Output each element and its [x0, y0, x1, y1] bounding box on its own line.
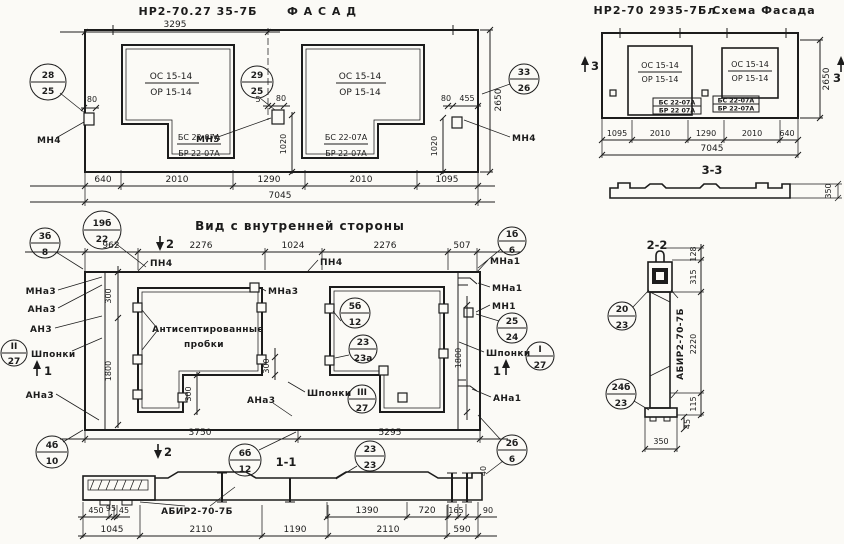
balloon-5b-12: 5б 12 [340, 298, 370, 328]
s11-dim-2110a: 2110 [190, 525, 213, 535]
s11-hatch [90, 480, 142, 490]
schema-dim-1095: 1095 [607, 129, 627, 138]
schema-title-code: НР2-70 2935-7Бл [594, 4, 717, 17]
balloon-1b-6: 1б 6 [498, 227, 526, 256]
view-top-dim-line [25, 249, 520, 255]
balloon-top: 33 [518, 68, 531, 78]
view-bottom-extensions [85, 430, 480, 443]
s22-part-label: АБИР2-70-7Б [676, 308, 686, 380]
balloon-III-27: III 27 [348, 385, 376, 414]
view-window-left-inner [142, 292, 258, 408]
s22-leader-lines [633, 290, 678, 410]
view-notch-dim-line [194, 372, 200, 415]
facade-dim-2010b: 2010 [350, 175, 373, 185]
balloon-bottom: 27 [534, 361, 547, 371]
section-mark-3-left: 3 [581, 56, 599, 73]
balloon-4b-10: 4б 10 [36, 436, 68, 468]
view-label-mna3-left1: МНа3 [26, 287, 56, 297]
balloon-top: 23 [364, 445, 377, 455]
section-mark-2-bottom: 2 [154, 444, 172, 459]
s11-dim-1045: 1045 [101, 525, 124, 535]
balloon-bottom: 23 [616, 321, 629, 331]
facade-dim-1020m: 1020 [279, 134, 288, 154]
s22-dim-350-line [642, 446, 680, 452]
balloon-3b-8: 3б 8 [30, 228, 60, 258]
balloon-top: 20 [616, 305, 629, 315]
schema-win2-mark-top: ОС 15-14 [731, 60, 769, 69]
balloon-top: 4б [46, 440, 59, 451]
facade-dim-1020r-line [440, 115, 446, 175]
view-note-line1: Антисептированные [152, 325, 264, 335]
view-label-shponki-mid: Шпонки [307, 389, 352, 399]
balloon-top: 1б [506, 229, 519, 240]
facade-anchor-label-mn4-right: МН4 [512, 134, 536, 144]
balloon-bottom: 12 [349, 318, 362, 328]
inner-view-title: Вид с внутренней стороны [195, 219, 405, 233]
balloon-top: 24б [612, 382, 631, 393]
s22-dim-45: 45 [683, 419, 692, 429]
anchor-plate-icon [272, 110, 284, 124]
balloon-bottom: 23 [615, 399, 628, 409]
view-dim-300-mid: 300 [262, 358, 271, 373]
balloon-top: I [538, 345, 541, 355]
facade-dim-1020m-line [289, 112, 295, 175]
section-2-2: 2-2 20 23 24б 23 АБИР2-70-7Б 128 315 222… [606, 238, 704, 452]
schema-drawing: НР2-70 2935-7Бл Схема Фасада ОС 15-14 ОР… [581, 4, 844, 201]
section-1-1: 1-1 23 23 40 АБИР2-70-7Б 450 95 45 1390 … [78, 441, 497, 539]
view-dim-1024: 1024 [282, 241, 305, 251]
balloon-28-25: 28 25 [30, 64, 66, 100]
view-note-line2: пробки [184, 339, 224, 350]
view-dim-1800-right: 1800 [454, 348, 463, 368]
schema-win1-mark-bot: ОР 15-14 [642, 75, 679, 84]
schema-title-word: Схема Фасада [712, 4, 815, 17]
section-mark-label: 2 [166, 237, 174, 251]
balloon-top: 6б [239, 448, 252, 459]
schema-sill1-top: БС 22-07А [659, 100, 696, 107]
balloon-bottom: 10 [46, 457, 59, 467]
s22-bottom-plate [645, 408, 677, 417]
facade-title-word: Ф А С А Д [287, 5, 357, 18]
view-dim-5295: 5295 [379, 428, 402, 438]
s11-dim-165: 165 [448, 506, 463, 515]
facade-win1-mark-bot: ОР 15-14 [150, 88, 192, 98]
s11-dim-1390: 1390 [356, 506, 379, 516]
facade-dim-1020r: 1020 [430, 136, 439, 156]
view-dim-507: 507 [453, 241, 470, 251]
balloon-top: II [11, 342, 18, 352]
s11-dim-1190: 1190 [284, 525, 307, 535]
balloon-bottom: 26 [518, 84, 531, 94]
drawing-canvas: НР2-70.27 35-7Б Ф А С А Д 3295 ОС 15-14 … [0, 0, 844, 544]
facade-dim-80r: 80 [441, 94, 451, 103]
balloon-20-23: 20 23 [608, 302, 636, 331]
view-label-ana3-left1: АНа3 [28, 305, 56, 315]
section-mark-label: 3 [833, 71, 841, 85]
s22-body [650, 292, 670, 408]
schema-dim-640: 640 [779, 129, 794, 138]
balloon-bottom: 8 [42, 248, 48, 258]
s22-lifting-loop [656, 251, 664, 262]
section-1-1-title: 1-1 [276, 455, 297, 469]
view-label-mna3-mid: МНа3 [268, 287, 298, 297]
schema-dim-2010a: 2010 [650, 129, 670, 138]
balloon-19b-22: 19б 22 [83, 211, 121, 249]
view-dim-2276b: 2276 [374, 241, 397, 251]
facade-dim-2650-line [480, 27, 493, 175]
facade-dim-80l: 80 [87, 95, 97, 104]
section-mark-1-left: 1 [33, 360, 52, 378]
schema-dim-2650-line [800, 37, 823, 121]
view-label-shponki-right: Шпонки [486, 349, 531, 359]
view-label-ana3-left2: АНа3 [26, 391, 54, 401]
balloon-bottom: 24 [506, 333, 519, 343]
schema-sill2-top: БС 22-07А [718, 98, 755, 105]
view-dim-300-notch: 300 [184, 386, 193, 401]
facade-win1-mark-top: ОС 15-14 [150, 72, 193, 82]
blueprint-sheet: НР2-70.27 35-7Б Ф А С А Д 3295 ОС 15-14 … [0, 0, 844, 544]
schema-dim-total: 7045 [701, 144, 724, 154]
balloon-top: 3б [39, 231, 52, 242]
view-label-ana1: АНа1 [493, 394, 521, 404]
s22-dim-115: 115 [689, 396, 698, 411]
facade-win2-mark-top: ОС 15-14 [339, 72, 382, 82]
section-mark-2-top: 2 [156, 236, 174, 251]
balloon-bottom: 23 [364, 461, 377, 471]
schema-dim-2010b: 2010 [742, 129, 762, 138]
facade-dim-80-455-line [443, 103, 481, 109]
section-3-3-title: 3-3 [702, 163, 723, 177]
s22-dim-2220: 2220 [689, 334, 698, 354]
s22-anchor-ring [654, 270, 666, 282]
section-2-2-title: 2-2 [647, 238, 668, 252]
facade-sill2-mark-bot: БР 22-07А [325, 149, 367, 158]
s22-body-taper-lines [650, 292, 670, 376]
anchor-plate-icon [452, 117, 462, 128]
view-label-mna1-2: МНа1 [492, 284, 522, 294]
facade-dim-640: 640 [94, 175, 111, 185]
balloon-bottom: 6 [509, 455, 515, 465]
view-dim-2276a: 2276 [190, 241, 213, 251]
balloon-top: 25 [506, 317, 519, 327]
facade-dim-2650: 2650 [494, 88, 504, 111]
s11-dim-95: 95 [106, 504, 116, 513]
view-label-ana3-mid: АНа3 [247, 396, 275, 406]
facade-dim-2010a: 2010 [166, 175, 189, 185]
s22-dim-350: 350 [653, 437, 668, 446]
section-3-3-dim-line [790, 181, 842, 201]
s11-dim-90: 90 [483, 506, 493, 515]
view-dim-3750: 3750 [189, 428, 212, 438]
balloon-top: 2б [506, 438, 519, 449]
view-dim-300-left: 300 [104, 288, 113, 303]
balloon-top: 28 [42, 71, 55, 81]
s11-dim-40: 40 [479, 466, 488, 476]
facade-anchor-label-mn5: МН5 [196, 135, 220, 145]
balloon-top: 19б [93, 218, 112, 229]
section-mark-label: 2 [164, 445, 172, 459]
s11-left-block [83, 476, 155, 500]
balloon-bottom: 23а [354, 354, 373, 364]
facade-sill1-mark-bot: БР 22-07А [178, 149, 220, 158]
schema-sill1-bot: БР 22 07А [659, 108, 695, 115]
s22-top-box [648, 262, 672, 292]
balloon-top: III [357, 388, 367, 398]
anchor-plate-icon [84, 113, 94, 125]
view-left-vert-dim-line [115, 266, 121, 428]
facade-dim-455: 455 [459, 94, 474, 103]
s11-part-label: АБИР2-70-7Б [161, 507, 233, 517]
balloon-29-25: 29 25 [241, 66, 273, 98]
s11-dim-45: 45 [119, 506, 129, 515]
facade-dim-1290: 1290 [258, 175, 281, 185]
s11-dim-2110b: 2110 [377, 525, 400, 535]
facade-dim-row2-line [30, 199, 495, 205]
facade-title-code: НР2-70.27 35-7Б [138, 5, 257, 18]
s22-dim-128: 128 [689, 246, 698, 261]
inner-view-drawing: Вид с внутренней стороны 962 2276 1024 2… [1, 211, 554, 476]
view-label-mna1-1: МНа1 [490, 257, 520, 267]
view-bottom-dim-line [60, 436, 508, 442]
balloon-II-27: II 27 [1, 340, 27, 367]
section-mark-label: 1 [493, 364, 501, 378]
facade-dim-80m: 80 [276, 94, 286, 103]
balloon-23-23a: 23 23а [349, 335, 377, 364]
balloon-25-24: 25 24 [497, 313, 527, 343]
balloon-bottom: 27 [356, 404, 369, 414]
s22-vert-dim-line [698, 244, 704, 418]
balloon-top: 23 [357, 338, 370, 348]
section-mark-1-right: 1 [493, 359, 510, 378]
schema-dim-1290: 1290 [696, 129, 716, 138]
schema-win1-mark-top: ОС 15-14 [641, 61, 679, 70]
section-mark-3-right: 3 [833, 56, 844, 85]
balloon-bottom: 27 [8, 357, 21, 367]
view-dim-1800-left: 1800 [104, 361, 113, 381]
schema-sill2-bot: БР 22-07А [718, 106, 755, 113]
balloon-bottom: 25 [42, 87, 55, 97]
section-mark-label: 1 [44, 364, 52, 378]
view-label-mn1: МН1 [492, 302, 516, 312]
s11-dim-720: 720 [418, 506, 435, 516]
schema-dim-2650: 2650 [822, 67, 832, 90]
section-mark-label: 3 [591, 59, 599, 73]
balloon-top: 29 [251, 71, 264, 81]
facade-dim-total: 7045 [269, 191, 292, 201]
facade-sill2-mark-top: БС 22-07А [325, 133, 368, 142]
view-label-pn4-right: ПН4 [320, 258, 343, 268]
s22-dim-315: 315 [689, 269, 698, 284]
balloon-24b-23: 24б 23 [606, 379, 636, 409]
view-window-left-outline [138, 288, 262, 412]
facade-anchor-label-mn4-left: МН4 [37, 136, 61, 146]
view-label-shponki-left: Шпонки [31, 350, 76, 360]
view-label-an3: АН3 [30, 325, 52, 335]
balloon-33-26: 33 26 [509, 64, 539, 94]
balloon-bottom: 22 [96, 235, 109, 245]
anchor-plate-icon [610, 90, 616, 96]
facade-dim-1095: 1095 [436, 175, 459, 185]
section-3-3-profile [610, 183, 790, 198]
facade-drawing: НР2-70.27 35-7Б Ф А С А Д 3295 ОС 15-14 … [30, 5, 539, 206]
balloon-top: 5б [349, 301, 362, 312]
view-label-pn4-left: ПН4 [150, 259, 173, 269]
view-mid-dim-line [272, 348, 278, 380]
facade-dim-5: 5 [255, 95, 260, 104]
schema-window-right [722, 48, 778, 98]
balloon-23-23: 23 23 [355, 441, 385, 471]
facade-win2-mark-bot: ОР 15-14 [339, 88, 381, 98]
facade-dim-3295: 3295 [164, 20, 187, 30]
section-3-3-dim-350: 350 [824, 183, 833, 198]
anchor-plate-icon [702, 90, 708, 96]
s11-dim-590: 590 [453, 525, 470, 535]
s11-dim-450: 450 [88, 506, 103, 515]
balloon-bottom: 6 [509, 246, 515, 256]
schema-win2-mark-bot: ОР 15-14 [732, 74, 769, 83]
facade-dim-80l-line [81, 105, 99, 111]
